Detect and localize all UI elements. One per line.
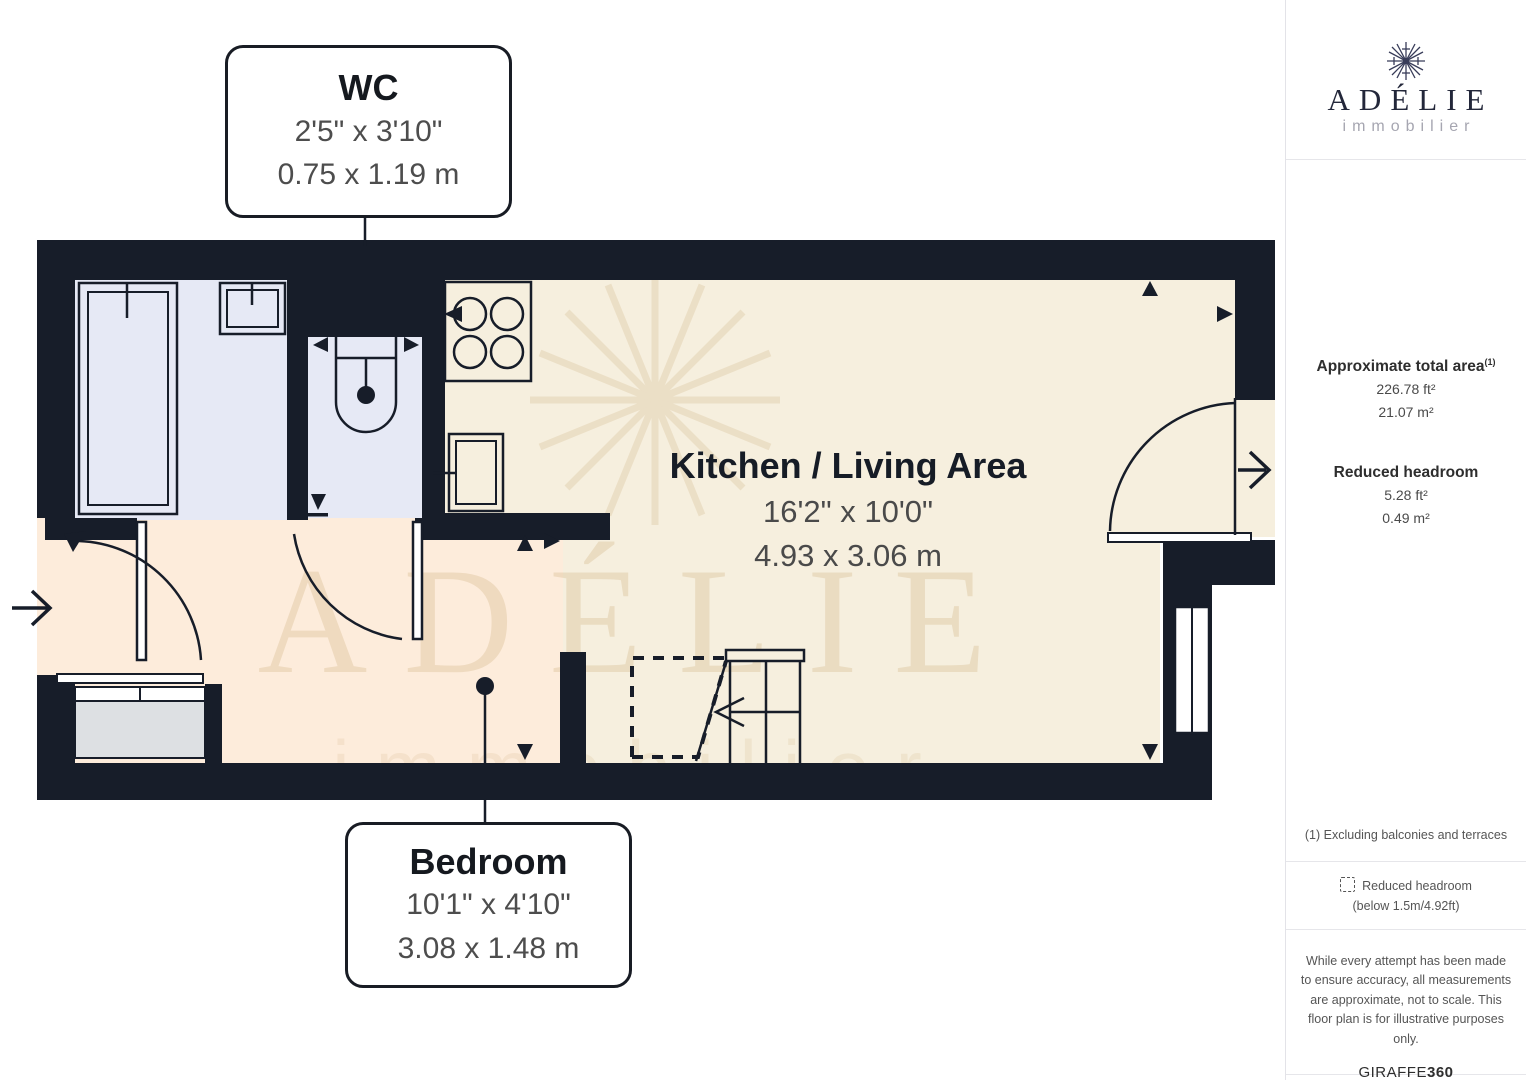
- wc-room-name: WC: [339, 66, 399, 109]
- provider-suffix: 360: [1427, 1064, 1454, 1080]
- wall-kitchen-counter: [445, 513, 610, 540]
- reduced-headroom-metric: 0.49 m²: [1286, 507, 1526, 530]
- brand-header: ADÉLIE immobilier: [1286, 0, 1526, 160]
- footnote-text: (1) Excluding balconies and terraces: [1305, 828, 1507, 842]
- provider-brand: GIRAFFE: [1358, 1064, 1427, 1080]
- hall-closet: [57, 674, 205, 758]
- provider-logo: GIRAFFE360: [1300, 1061, 1512, 1080]
- bathtub: [79, 283, 177, 514]
- wc-dims-metric: 0.75 x 1.19 m: [278, 153, 460, 197]
- area-summary: Approximate total area(1) 226.78 ft² 21.…: [1286, 356, 1526, 530]
- wall-right-upper: [1235, 240, 1275, 400]
- bathroom-sink: [220, 283, 285, 334]
- wc-callout: WC 2'5" x 3'10" 0.75 x 1.19 m: [225, 45, 512, 218]
- approx-area-label: Approximate total area(1): [1286, 356, 1526, 378]
- disclaimer-text: While every attempt has been made to ens…: [1300, 952, 1512, 1049]
- info-sidebar: ADÉLIE immobilier Approximate total area…: [1285, 0, 1526, 1080]
- stove: [445, 282, 531, 381]
- footnote-ref: (1): [1484, 357, 1495, 367]
- dashed-square-icon: [1340, 877, 1355, 892]
- kitchen-dims-imperial: 16'2" x 10'0": [598, 490, 1098, 534]
- reduced-headroom-label: Reduced headroom: [1286, 462, 1526, 484]
- floorplan: ADÉLIE immobilier: [0, 0, 1285, 1080]
- wall-closet-stub: [205, 684, 222, 763]
- wall-right-step2: [1163, 585, 1212, 607]
- kitchen-dims-metric: 4.93 x 3.06 m: [598, 534, 1098, 578]
- reduced-headroom-imperial: 5.28 ft²: [1286, 484, 1526, 507]
- wall-bottom: [37, 763, 1212, 800]
- approx-area-imperial: 226.78 ft²: [1286, 378, 1526, 401]
- legend-detail: (below 1.5m/4.92ft): [1353, 896, 1460, 916]
- wall-right-step: [1163, 540, 1275, 585]
- bedroom-dims-imperial: 10'1" x 4'10": [406, 883, 571, 927]
- kitchen-label: Kitchen / Living Area 16'2" x 10'0" 4.93…: [598, 443, 1098, 578]
- brand-name: ADÉLIE: [1286, 82, 1526, 118]
- kitchen-room-name: Kitchen / Living Area: [598, 443, 1098, 490]
- wall-left-upper: [37, 240, 75, 518]
- bedroom-dims-metric: 3.08 x 1.48 m: [398, 927, 580, 971]
- headroom-legend: Reduced headroom (below 1.5m/4.92ft): [1286, 862, 1526, 930]
- bedroom-leader-dot: [476, 677, 494, 695]
- wc-dims-imperial: 2'5" x 3'10": [295, 110, 443, 154]
- snowflake-icon: [1383, 38, 1429, 84]
- wall-under-bath: [45, 518, 137, 540]
- wall-bath-wc-divider: [287, 280, 308, 520]
- window: [1175, 607, 1209, 733]
- wall-wc-right: [422, 280, 445, 540]
- wall-wc-top: [308, 280, 422, 337]
- bedroom-room-name: Bedroom: [409, 840, 567, 883]
- approx-area-metric: 21.07 m²: [1286, 401, 1526, 424]
- bedroom-callout: Bedroom 10'1" x 4'10" 3.08 x 1.48 m: [345, 822, 632, 988]
- marker-wc-bottom-base: [308, 513, 328, 517]
- disclaimer-section: While every attempt has been made to ens…: [1286, 930, 1526, 1075]
- legend-label: Reduced headroom: [1362, 879, 1472, 893]
- brand-tagline: immobilier: [1286, 118, 1526, 136]
- footnote: (1) Excluding balconies and terraces: [1286, 808, 1526, 862]
- wall-top: [37, 240, 1275, 280]
- wall-bedroom-divider: [560, 652, 586, 763]
